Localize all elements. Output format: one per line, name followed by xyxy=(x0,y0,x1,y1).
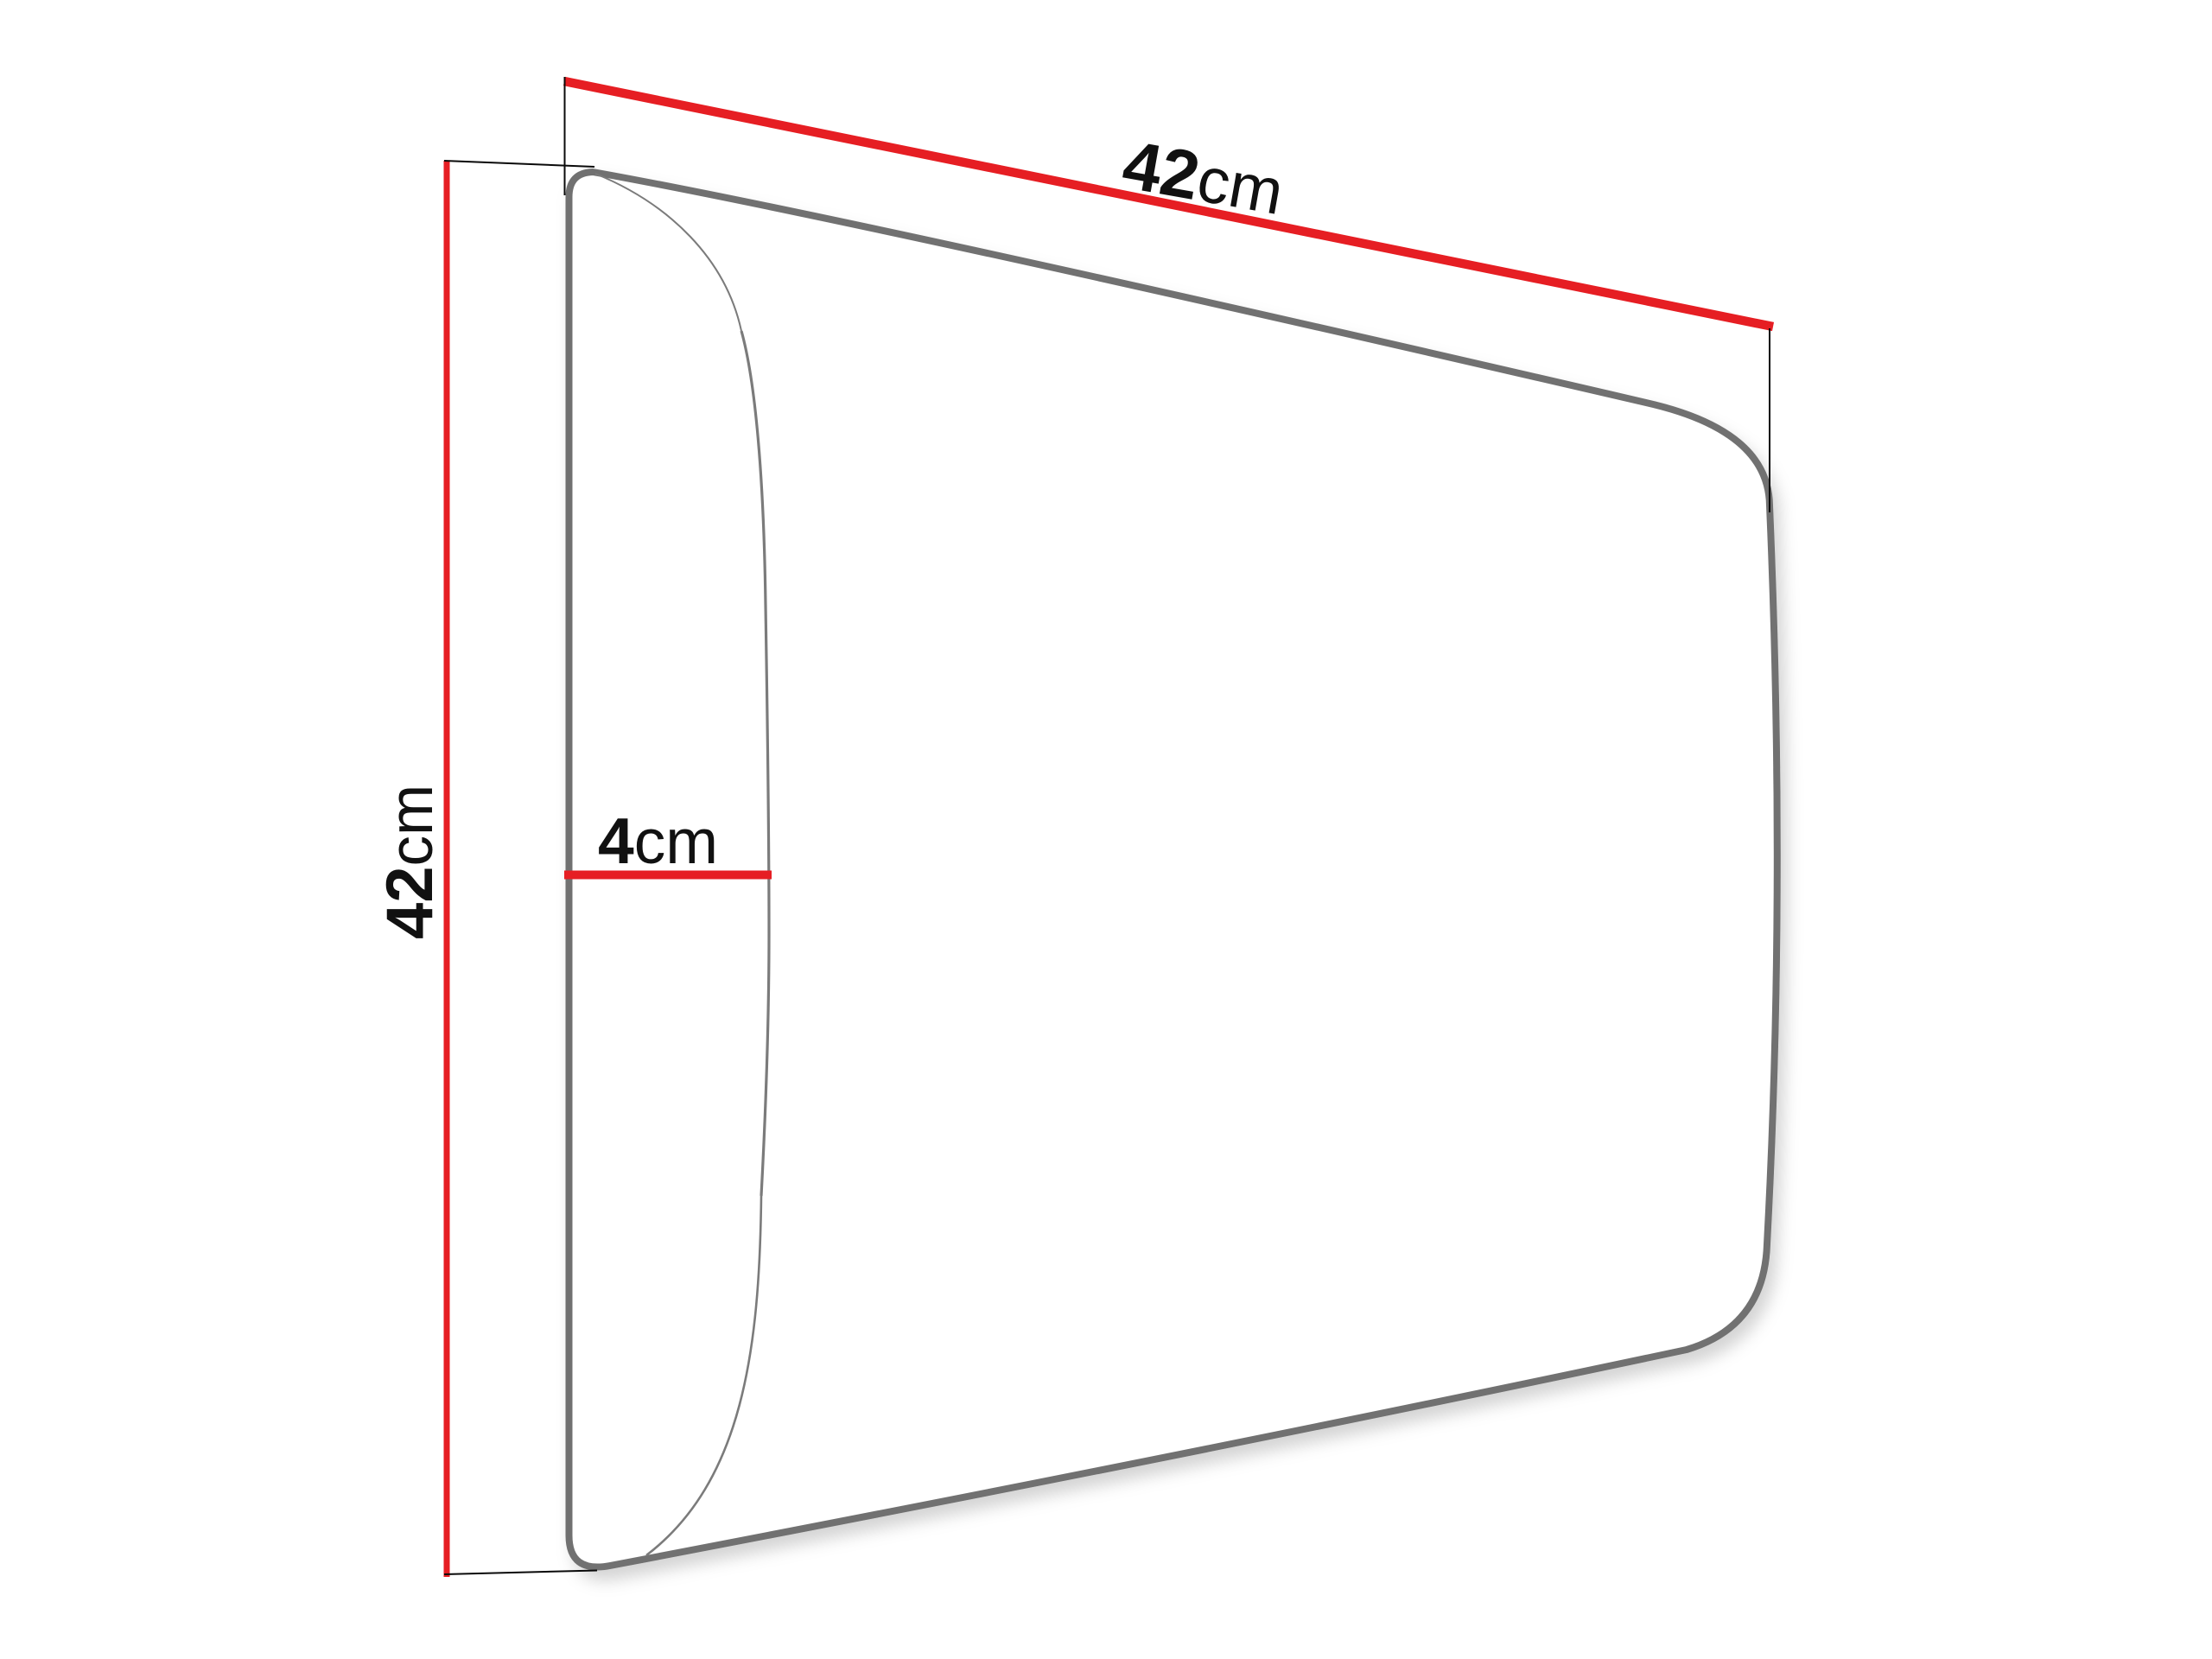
svg-text:42cm: 42cm xyxy=(373,785,447,939)
svg-text:42cm: 42cm xyxy=(1117,125,1289,229)
svg-text:4cm: 4cm xyxy=(598,804,718,877)
